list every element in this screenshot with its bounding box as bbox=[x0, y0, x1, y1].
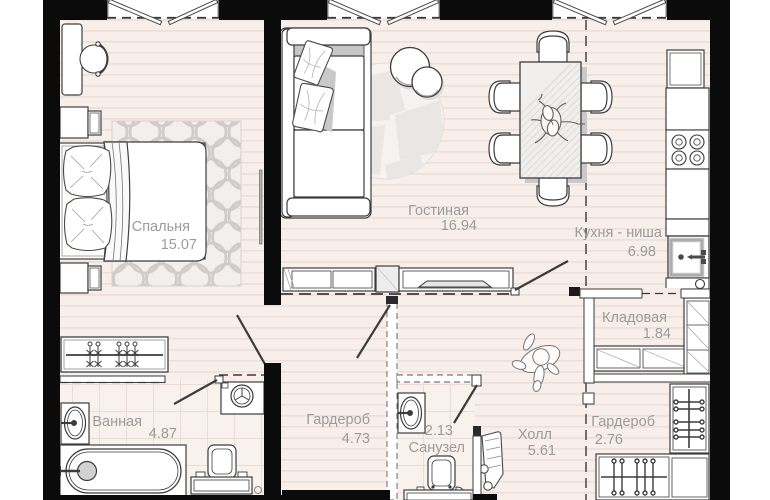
svg-text:Гостиная: Гостиная bbox=[408, 203, 469, 219]
svg-text:2.13: 2.13 bbox=[425, 423, 453, 439]
svg-text:Спальня: Спальня bbox=[132, 219, 190, 235]
svg-text:4.73: 4.73 bbox=[342, 431, 370, 447]
svg-text:2.76: 2.76 bbox=[595, 432, 623, 448]
svg-text:6.98: 6.98 bbox=[628, 244, 656, 260]
svg-text:Гардероб: Гардероб bbox=[306, 412, 370, 428]
svg-text:16.94: 16.94 bbox=[441, 218, 477, 234]
svg-text:Гардероб: Гардероб bbox=[591, 414, 655, 430]
svg-text:5.61: 5.61 bbox=[528, 443, 556, 459]
svg-text:4.87: 4.87 bbox=[149, 426, 177, 442]
svg-text:Ванная: Ванная bbox=[92, 414, 142, 430]
svg-text:15.07: 15.07 bbox=[161, 237, 197, 253]
svg-text:Кладовая: Кладовая bbox=[602, 310, 667, 326]
svg-text:Санузел: Санузел bbox=[409, 440, 466, 456]
svg-text:1.84: 1.84 bbox=[643, 326, 671, 342]
svg-text:Кухня - ниша: Кухня - ниша bbox=[575, 225, 663, 241]
svg-text:Холл: Холл bbox=[518, 427, 552, 443]
